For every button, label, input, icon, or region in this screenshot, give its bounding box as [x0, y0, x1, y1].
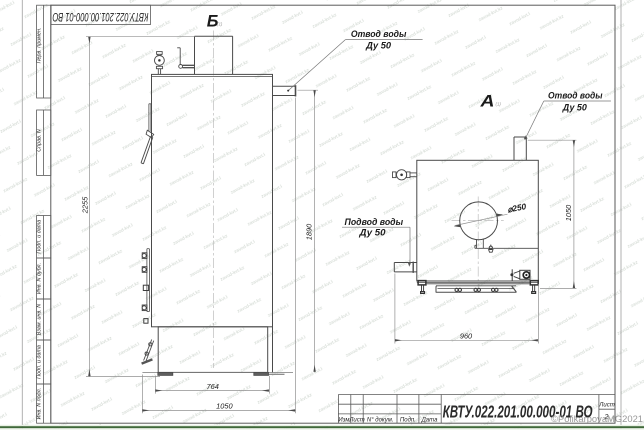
svg-text:Подп. и дата: Подп. и дата — [37, 345, 43, 379]
svg-text:Ду 50: Ду 50 — [358, 228, 386, 238]
svg-text:Инв. N подл.: Инв. N подл. — [37, 388, 43, 420]
svg-text:Подп.: Подп. — [400, 417, 416, 423]
svg-text:Справ. N: Справ. N — [37, 129, 43, 152]
svg-text:(1): (1) — [496, 102, 502, 107]
svg-text:N° докум.: N° докум. — [367, 417, 394, 423]
svg-text:Дата: Дата — [421, 417, 438, 423]
svg-text:(1): (1) — [217, 22, 223, 27]
svg-text:1890: 1890 — [305, 223, 314, 240]
svg-text:КВТУ.022.201.00.000-01 ВО: КВТУ.022.201.00.000-01 ВО — [52, 10, 148, 22]
svg-text:Отвод воды: Отвод воды — [548, 91, 603, 101]
svg-text:Подвод воды: Подвод воды — [345, 217, 404, 227]
svg-text:2255: 2255 — [81, 196, 90, 214]
svg-text:Отвод воды: Отвод воды — [351, 29, 407, 39]
svg-text:Взам. инв. N: Взам. инв. N — [37, 304, 43, 336]
svg-text:Подп. и дата: Подп. и дата — [37, 220, 43, 254]
svg-text:©PolikarpovaMG2021: ©PolikarpovaMG2021 — [551, 413, 643, 424]
svg-text:Инв. N дубл.: Инв. N дубл. — [37, 263, 43, 294]
svg-text:764: 764 — [207, 382, 219, 391]
svg-text:1050: 1050 — [216, 401, 233, 410]
svg-text:Лист: Лист — [598, 403, 614, 409]
svg-text:Ду 50: Ду 50 — [562, 103, 588, 113]
svg-text:1050: 1050 — [564, 204, 573, 221]
svg-text:960: 960 — [460, 331, 473, 340]
svg-text:Лист: Лист — [348, 417, 364, 423]
svg-text:А: А — [479, 91, 494, 110]
svg-text:Перв. примен.: Перв. примен. — [37, 28, 43, 64]
svg-text:Ду 50: Ду 50 — [365, 40, 392, 50]
